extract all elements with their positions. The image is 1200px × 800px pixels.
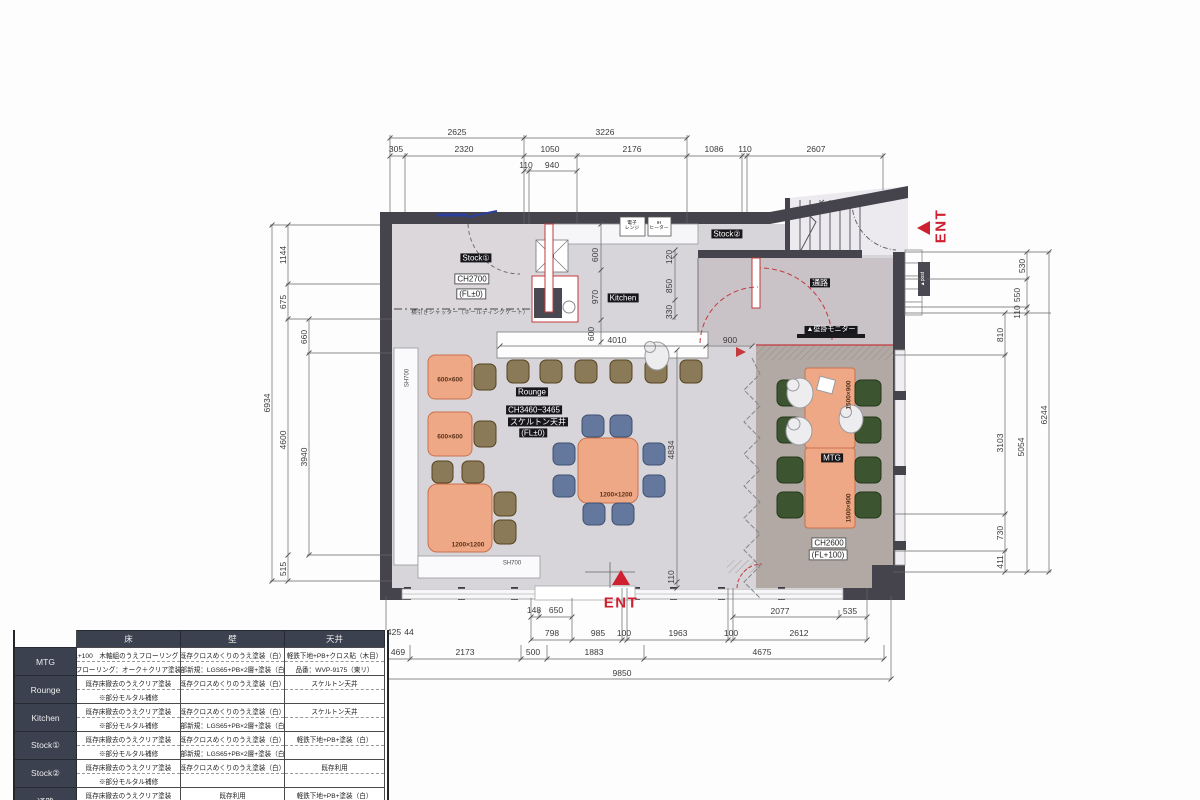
- finish-table-line: 既存床撤去のうえクリア塗装: [77, 676, 180, 689]
- finish-table-row: Kitchen既存床撤去のうえクリア塗装※部分モルタル補修既存クロスめくりのうえ…: [15, 703, 387, 731]
- finish-table-row-label: Stock①: [15, 731, 77, 759]
- dimension-label: 110: [519, 161, 533, 171]
- finish-table-line: フローリング：オーク＋クリア塗装: [77, 661, 180, 675]
- shutter-note: 横引きシャッター（ホールディングゲート）: [411, 310, 529, 316]
- finish-table-header: 天井: [285, 630, 385, 647]
- dimension-label: 900: [723, 336, 737, 346]
- dimension-label: 550: [1013, 288, 1023, 302]
- dimension-label: 3226: [596, 128, 615, 138]
- entrance-label-bottom: ENT: [604, 594, 639, 611]
- finish-table-line: 既存クロスめくりのうえ塗装（白）: [181, 760, 284, 773]
- dimension-label: 1086: [705, 145, 724, 155]
- finish-table-row-label: Kitchen: [15, 703, 77, 731]
- dimension-label: 425: [387, 628, 401, 638]
- floor-level-stock1: (FL±0): [456, 288, 486, 299]
- finish-table-cell: 既存クロスめくりのうえ塗装（白）一部新規：LGS65+PB×2層+塗装（白）: [181, 647, 285, 675]
- finish-table-line: スケルトン天井: [285, 704, 384, 717]
- finish-table-cell: 既存床撤去のうえクリア塗装※部分モルタル補修: [77, 703, 181, 731]
- dimension-label: 2077: [771, 607, 790, 617]
- dimension-label: 600: [587, 327, 597, 341]
- ceiling-height-mtg: CH2600: [811, 537, 846, 548]
- table-size-label: 1500×900: [845, 380, 852, 409]
- dimension-label: 2607: [807, 145, 826, 155]
- finish-table-line: [181, 773, 284, 787]
- table-size-label: 1200×1200: [600, 491, 633, 498]
- finish-table-cell: 既存床撤去のうえクリア塗装※部分モルタル補修: [77, 759, 181, 787]
- finish-table-line: ※部分モルタル補修: [77, 717, 180, 731]
- finish-table-line: [181, 689, 284, 703]
- dimension-label: 4834: [667, 441, 677, 460]
- dimension-label: 4600: [279, 431, 289, 450]
- finish-table-cell: 既存床撤去のうえクリア塗装※部分モルタル補修: [77, 787, 181, 800]
- finish-table-cell: 既存床撤去のうえクリア塗装※部分モルタル補修: [77, 731, 181, 759]
- wall-monitor-label: ▲壁掛モニター: [805, 326, 858, 334]
- finish-table-line: 軽鉄下地+PB+クロス貼（木目）: [285, 648, 384, 661]
- finish-table-cell: 軽鉄下地+PB+クロス貼（木目）品番：WVP-9175（東リ）: [285, 647, 385, 675]
- ih-heater-label: IH ヒーター: [649, 221, 668, 231]
- finish-table-line: 既存床撤去のうえクリア塗装: [77, 760, 180, 773]
- room-label-kitchen: Kitchen: [608, 293, 639, 302]
- floor-level-mtg: (FL+100): [809, 549, 848, 560]
- finish-table-line: ※部分モルタル補修: [77, 745, 180, 759]
- dimension-label: 675: [279, 295, 289, 309]
- dimension-label: 305: [389, 145, 403, 155]
- dimension-label: 9850: [613, 669, 632, 679]
- dimension-label: 530: [1018, 259, 1028, 273]
- room-label-rounge: Rounge: [516, 387, 548, 396]
- finish-table-line: 既存床撤去のうえクリア塗装: [77, 788, 180, 800]
- table-size-label: 1200×1200: [452, 541, 485, 548]
- dimension-label: 660: [300, 330, 310, 344]
- finish-table-header: 壁: [181, 630, 285, 647]
- dimension-label: 500: [526, 648, 540, 658]
- finish-table-line: FL+100 木軸組のうえフローリング 貼: [77, 648, 180, 661]
- finish-table-cell: スケルトン天井: [285, 703, 385, 731]
- finish-table-line: 既存利用: [285, 760, 384, 773]
- microwave-label: 電子 レンジ: [625, 221, 639, 231]
- finish-table-line: 品番：WVP-9175（東リ）: [285, 661, 384, 675]
- dimension-label: 1883: [585, 648, 604, 658]
- dimension-label: 650: [549, 606, 563, 616]
- dimension-label: 4010: [608, 336, 627, 346]
- dimension-label: 798: [545, 629, 559, 639]
- finish-table-line: ※部分モルタル補修: [77, 689, 180, 703]
- dimension-label: 110: [667, 570, 677, 584]
- finish-table-corner: [15, 630, 77, 647]
- dimension-label: 330: [665, 305, 675, 319]
- finish-table-line: 一部新規：LGS65+PB×2層+塗装（白）: [181, 661, 284, 675]
- finish-table-line: スケルトン天井: [285, 676, 384, 689]
- finish-table-line: 一部新規：LGS65+PB×2層+塗装（白）: [181, 717, 284, 731]
- finish-table-row: Stock①既存床撤去のうえクリア塗装※部分モルタル補修既存クロスめくりのうえ塗…: [15, 731, 387, 759]
- finish-table-line: 軽鉄下地+PB+塗装（白）: [285, 788, 384, 800]
- finish-table-row-label: 通路: [15, 787, 77, 800]
- room-label-corridor: 通路: [810, 278, 830, 287]
- finish-table-line: 一部新規：LGS65+PB×2層+塗装（白）: [181, 745, 284, 759]
- finish-table-header: 床: [77, 630, 181, 647]
- dimension-label: 600: [591, 248, 601, 262]
- finish-table-line: 既存クロスめくりのうえ塗装（白）: [181, 648, 284, 661]
- finish-table-cell: 既存クロスめくりのうえ塗装（白）一部新規：LGS65+PB×2層+塗装（白）: [181, 731, 285, 759]
- dimension-label: 120: [665, 250, 675, 264]
- table-size-label: 600×600: [437, 376, 463, 383]
- entrance-label-right: ENT: [932, 209, 949, 244]
- dimension-label: 985: [591, 629, 605, 639]
- finish-table-line: 既存クロスめくりのうえ塗装（白）: [181, 676, 284, 689]
- dimension-label: 6244: [1040, 406, 1050, 425]
- bench-height-label: SH700: [405, 369, 412, 387]
- dimension-label: 850: [665, 279, 675, 293]
- finish-table-cell: スケルトン天井: [285, 675, 385, 703]
- dimension-label: 6934: [263, 394, 273, 413]
- finish-table-cell: 既存クロスめくりのうえ塗装（白）: [181, 759, 285, 787]
- finish-table: 床壁天井MTGFL+100 木軸組のうえフローリング 貼フローリング：オーク＋ク…: [13, 630, 389, 800]
- finish-table-cell: 既存利用一部新規：LGS65+PB×2層+塗装（白）: [181, 787, 285, 800]
- dimension-label: 1963: [669, 629, 688, 639]
- dimension-label: 810: [996, 328, 1006, 342]
- finish-table-row-label: Stock②: [15, 759, 77, 787]
- dimension-label: 100: [724, 629, 738, 639]
- dimension-label: 970: [591, 290, 601, 304]
- ceiling-height-rounge: CH3460~3465: [506, 405, 562, 414]
- finish-table-row-label: Rounge: [15, 675, 77, 703]
- finish-table-row: 通路既存床撤去のうえクリア塗装※部分モルタル補修既存利用一部新規：LGS65+P…: [15, 787, 387, 800]
- finish-table-line: [285, 689, 384, 703]
- finish-table-row: Stock②既存床撤去のうえクリア塗装※部分モルタル補修既存クロスめくりのうえ塗…: [15, 759, 387, 787]
- dimension-label: 148: [527, 606, 541, 616]
- dimension-label: 2625: [448, 128, 467, 138]
- dimension-label: 2176: [623, 145, 642, 155]
- finish-table-cell: 既存利用: [285, 759, 385, 787]
- dimension-label: 2173: [456, 648, 475, 658]
- dimension-label: 469: [391, 648, 405, 658]
- bench-height-label: SH700: [503, 561, 521, 568]
- ceiling-height-stock1: CH2700: [454, 273, 489, 284]
- finish-table-line: [285, 773, 384, 787]
- dimension-label: 110: [1013, 305, 1023, 319]
- finish-table-line: 既存利用: [181, 788, 284, 800]
- finish-table-cell: 既存クロスめくりのうえ塗装（白）一部新規：LGS65+PB×2層+塗装（白）: [181, 703, 285, 731]
- finish-table-cell: 軽鉄下地+PB+塗装（白）: [285, 731, 385, 759]
- finish-table-line: 既存クロスめくりのうえ塗装（白）: [181, 732, 284, 745]
- finish-table-cell: 軽鉄下地+PB+塗装（白）: [285, 787, 385, 800]
- floor-level-rounge: (FL±0): [519, 428, 547, 437]
- dimension-label: 44: [404, 628, 413, 638]
- finish-table-line: 既存クロスめくりのうえ塗装（白）: [181, 704, 284, 717]
- dimension-label: 535: [843, 607, 857, 617]
- floor-plan-canvas: 2625322630523201050217610861102607110940…: [0, 0, 1200, 800]
- room-label-stock1: Stock①: [460, 253, 491, 262]
- dimension-label: 1144: [279, 246, 289, 264]
- dimension-label: 4675: [753, 648, 772, 658]
- finish-table-line: 既存床撤去のうえクリア塗装: [77, 732, 180, 745]
- finish-table-cell: 既存床撤去のうえクリア塗装※部分モルタル補修: [77, 675, 181, 703]
- finish-table-line: 軽鉄下地+PB+塗装（白）: [285, 732, 384, 745]
- dimension-label: 3940: [300, 448, 310, 467]
- finish-table-row: Rounge既存床撤去のうえクリア塗装※部分モルタル補修既存クロスめくりのうえ塗…: [15, 675, 387, 703]
- finish-table-line: ※部分モルタル補修: [77, 773, 180, 787]
- dimension-label: 2612: [790, 629, 809, 639]
- dimension-label: 100: [617, 629, 631, 639]
- dimension-label: 940: [545, 161, 559, 171]
- room-label-stock2: Stock②: [711, 229, 742, 238]
- dimension-label: 515: [279, 562, 289, 576]
- finish-table-cell: 既存クロスめくりのうえ塗装（白）: [181, 675, 285, 703]
- post-label: ▲post: [921, 271, 927, 287]
- table-size-label: 600×600: [437, 433, 463, 440]
- finish-table-row-label: MTG: [15, 647, 77, 675]
- finish-table-cell: FL+100 木軸組のうえフローリング 貼フローリング：オーク＋クリア塗装: [77, 647, 181, 675]
- dimension-label: 1050: [541, 145, 560, 155]
- finish-table-line: 既存床撤去のうえクリア塗装: [77, 704, 180, 717]
- ceiling-type-rounge: スケルトン天井: [508, 417, 568, 426]
- room-label-mtg: MTG: [821, 453, 843, 462]
- finish-table-line: [285, 745, 384, 759]
- table-size-label: 1500×900: [845, 493, 852, 522]
- finish-table-line: [285, 717, 384, 731]
- dimension-label: 110: [738, 145, 752, 155]
- dimension-label: 411: [996, 555, 1006, 569]
- dimension-label: 730: [996, 526, 1006, 540]
- finish-table-row: MTGFL+100 木軸組のうえフローリング 貼フローリング：オーク＋クリア塗装…: [15, 647, 387, 675]
- dimension-label: 5054: [1017, 438, 1027, 457]
- dimension-label: 3103: [996, 434, 1006, 453]
- dimension-label: 2320: [455, 145, 474, 155]
